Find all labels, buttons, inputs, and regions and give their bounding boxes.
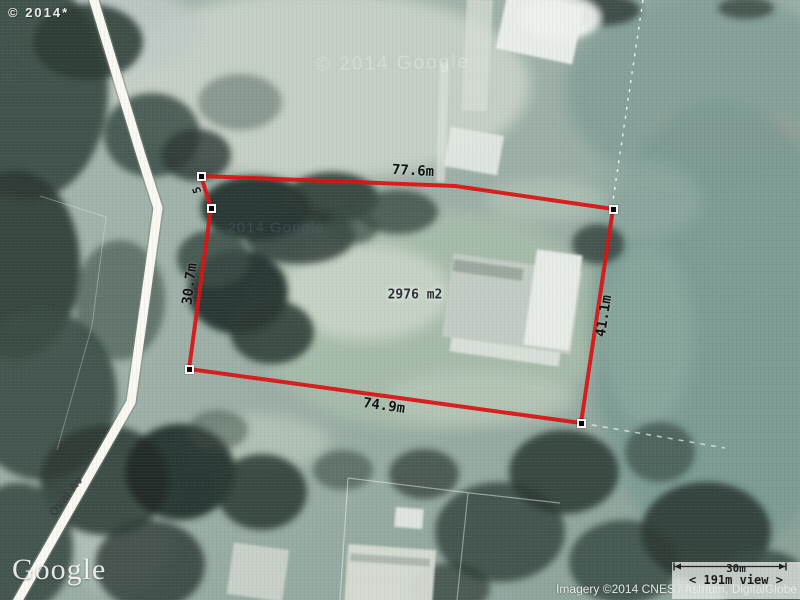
parcel-vertex-marker[interactable] [207, 204, 216, 213]
satellite-map[interactable]: 77.6m 74.9m 41.1m 30.7m 5 2976 m2 © 2014… [0, 0, 800, 600]
parcel-vertex-marker[interactable] [185, 365, 194, 374]
view-width-label: < 191m view > [689, 574, 783, 587]
copyright-top-left: © 2014* [8, 5, 69, 20]
google-watermark-inner: 2014 Google [228, 220, 325, 237]
parcel-vertex-marker[interactable] [197, 172, 206, 181]
parcel-area-label: 2976 m2 [388, 288, 443, 303]
google-logo: Google [12, 553, 106, 587]
parcel-vertex-marker[interactable] [609, 205, 618, 214]
edge-label-top: 77.6m [392, 162, 435, 180]
scale-bar-arrow [672, 562, 788, 571]
google-watermark-top: © 2014 Google [316, 52, 470, 77]
parcel-vertex-marker[interactable] [577, 419, 586, 428]
scale-bar-panel: 30m < 191m view > [672, 562, 800, 599]
